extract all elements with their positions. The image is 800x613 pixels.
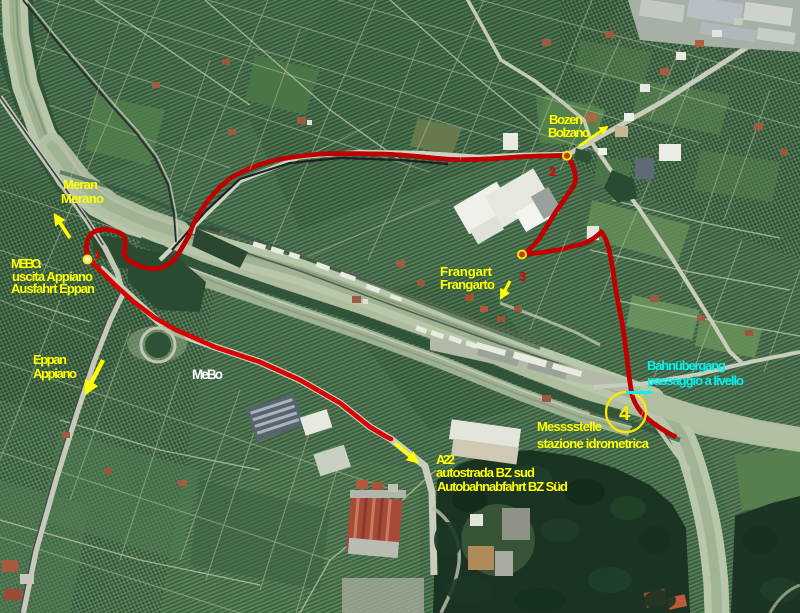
svg-text:MeBo: MeBo (192, 367, 223, 382)
svg-text:Messsstelle: Messsstelle (537, 419, 602, 434)
svg-text:Bahnübergang: Bahnübergang (647, 358, 726, 373)
svg-text:Appiano: Appiano (33, 366, 77, 381)
svg-text:Ausfahrt Eppan: Ausfahrt Eppan (11, 281, 95, 296)
svg-text:Bolzano: Bolzano (548, 125, 590, 140)
svg-text:4: 4 (619, 403, 631, 425)
svg-text:Merano: Merano (61, 191, 104, 206)
svg-text:Autobahnabfahrt BZ Süd: Autobahnabfahrt BZ Süd (437, 479, 568, 494)
svg-text:autostrada BZ sud: autostrada BZ sud (436, 465, 535, 480)
svg-text:1: 1 (94, 247, 101, 262)
svg-text:Frangarto: Frangarto (440, 277, 495, 292)
svg-text:stazione idrometrica: stazione idrometrica (537, 436, 650, 451)
svg-text:Meran: Meran (63, 177, 98, 192)
svg-text:3: 3 (519, 269, 526, 284)
svg-text:Eppan: Eppan (33, 352, 67, 367)
svg-text:2: 2 (549, 164, 556, 179)
svg-text:passaggio a livello: passaggio a livello (647, 373, 744, 388)
